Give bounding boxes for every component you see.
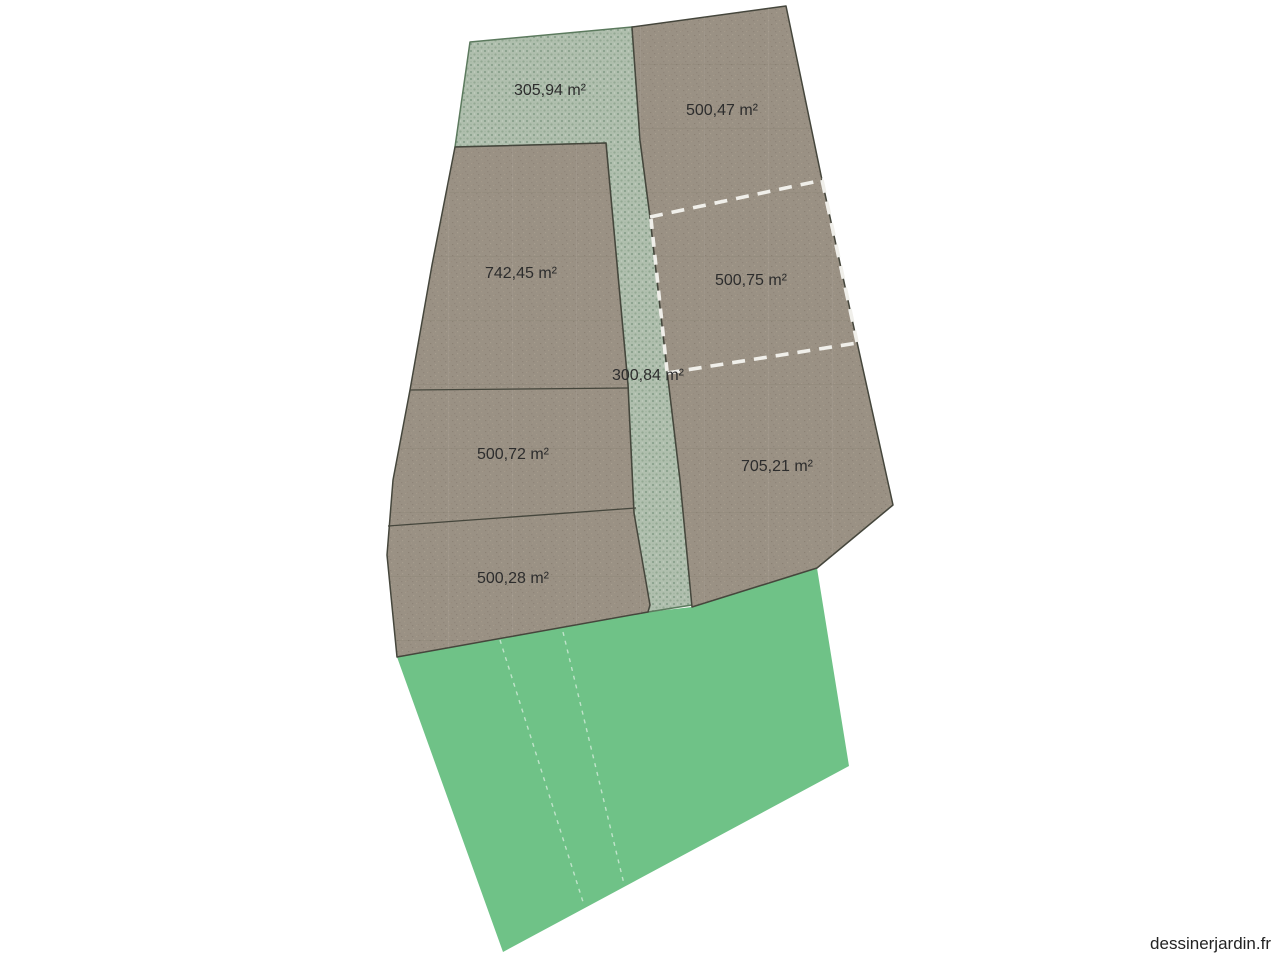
area-label-parcel-west-lower: 500,28 m² [477, 570, 550, 587]
area-label-parcel-west-large: 742,45 m² [485, 265, 558, 282]
garden-plan-stage: 305,94 m² 500,47 m² 742,45 m² 500,75 m² … [0, 0, 1280, 960]
area-label-parcel-north-east: 500,47 m² [686, 102, 759, 119]
area-label-parcel-west-middle: 500,72 m² [477, 446, 550, 463]
area-label-parcel-east-middle: 500,75 m² [715, 272, 788, 289]
site-watermark: dessinerjardin.fr [1150, 934, 1271, 953]
area-label-parcel-south-east: 705,21 m² [741, 458, 814, 475]
area-label-hedge-path: 300,84 m² [612, 367, 685, 384]
garden-plan-canvas: 305,94 m² 500,47 m² 742,45 m² 500,75 m² … [0, 0, 1280, 960]
area-label-hedge-top: 305,94 m² [514, 82, 587, 99]
